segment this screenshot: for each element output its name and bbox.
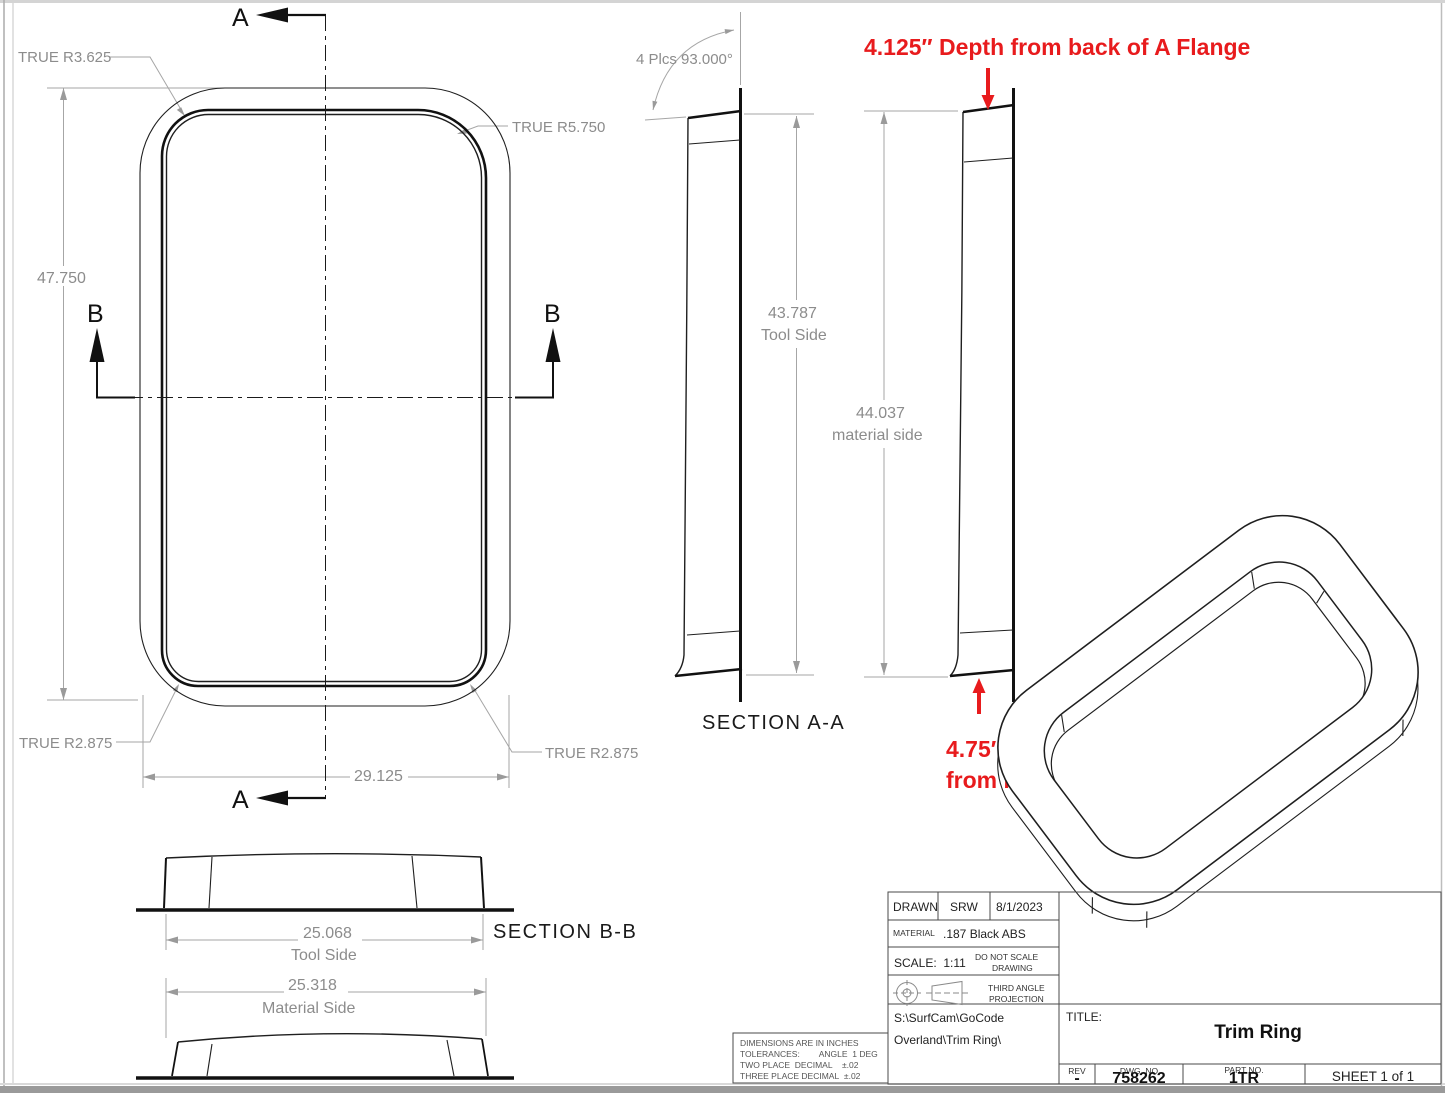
drawing-sheet: 47.750 29.125 TRUE R3.625 TRUE R5.750 TR…: [0, 0, 1445, 1093]
label-radius-bottom-left: TRUE R2.875: [19, 735, 112, 752]
marker-b-left: B: [87, 300, 104, 328]
drawn-by: SRW: [950, 900, 978, 914]
third-angle-projection-icon: [893, 980, 968, 1006]
red-arrow-up: [973, 678, 986, 693]
rev-value: -: [1074, 1070, 1079, 1087]
section-aa-right-profile: [950, 88, 1014, 702]
file-path-line-2: Overland\Trim Ring\: [894, 1033, 1002, 1047]
section-bb-material-profile: [136, 1034, 514, 1078]
material-label: MATERIAL: [893, 928, 935, 938]
part-no-value: 1TR: [1229, 1070, 1260, 1087]
section-bb-label: SECTION B-B: [493, 921, 637, 943]
isometric-view: [961, 487, 1445, 950]
title-block: DRAWN SRW 8/1/2023 MATERIAL .187 Black A…: [888, 892, 1441, 1087]
no-scale-line-1: DO NOT SCALE: [975, 952, 1038, 962]
tolerance-block: DIMENSIONS ARE IN INCHES TOLERANCES: ANG…: [733, 1033, 888, 1083]
title-label: TITLE:: [1066, 1010, 1102, 1024]
front-view: [97, 15, 553, 798]
dim-tool-side-caption: Tool Side: [761, 327, 827, 344]
dim-tool-side-value: 43.787: [768, 305, 817, 322]
no-scale-line-2: DRAWING: [992, 963, 1033, 973]
dim-height: 47.750: [37, 270, 86, 287]
dwg-no-value: 758262: [1112, 1070, 1165, 1087]
projection-line-2: PROJECTION: [989, 994, 1044, 1004]
marker-b-right: B: [544, 300, 561, 328]
scale-value: SCALE: 1:11: [894, 956, 966, 970]
material-value: .187 Black ABS: [943, 927, 1026, 941]
dim-bb-tool-caption: Tool Side: [291, 947, 357, 964]
dim-material-side-value: 44.037: [856, 405, 905, 422]
label-radius-top-right: TRUE R5.750: [512, 119, 605, 136]
projection-line-1: THIRD ANGLE: [988, 983, 1045, 993]
dim-bb-material-value: 25.318: [288, 977, 337, 994]
tolerance-line-4: THREE PLACE DECIMAL ±.02: [740, 1071, 861, 1081]
label-radius-top-left: TRUE R3.625: [18, 49, 111, 66]
dim-bb-material-caption: Material Side: [262, 1000, 355, 1017]
section-aa-label: SECTION A-A: [702, 712, 845, 734]
sheet-number: SHEET 1 of 1: [1332, 1069, 1414, 1084]
drawn-label: DRAWN: [893, 900, 938, 914]
depth-annotation-top: 4.125″ Depth from back of A Flange: [864, 34, 1250, 60]
section-aa-view: 4 Plcs 93.000° 43.787 Tool Side 44.037 m…: [636, 12, 1014, 734]
dim-width: 29.125: [354, 768, 403, 785]
dim-material-side-caption: material side: [832, 427, 923, 444]
dim-bb-tool-value: 25.068: [303, 925, 352, 942]
drawn-date: 8/1/2023: [996, 900, 1043, 914]
file-path-line-1: S:\SurfCam\GoCode: [894, 1011, 1004, 1025]
label-radius-bottom-right: TRUE R2.875: [545, 745, 638, 762]
section-aa-left-profile: [675, 88, 742, 702]
drawing-title: Trim Ring: [1214, 1022, 1302, 1043]
marker-a-bottom: A: [232, 786, 249, 814]
angle-callout: 4 Plcs 93.000°: [636, 51, 733, 68]
marker-a-top: A: [232, 4, 249, 32]
drawing-canvas: 47.750 29.125 TRUE R3.625 TRUE R5.750 TR…: [0, 0, 1445, 1093]
section-bb-view: 25.068 Tool Side SECTION B-B 25.318 Mate…: [136, 854, 637, 1078]
tolerance-line-2: TOLERANCES: ANGLE 1 DEG: [740, 1049, 878, 1059]
section-bb-tool-profile: [136, 854, 514, 910]
front-view-dimensions: 47.750 29.125 TRUE R3.625 TRUE R5.750 TR…: [18, 49, 638, 788]
tolerance-line-1: DIMENSIONS ARE IN INCHES: [740, 1038, 859, 1048]
tolerance-line-3: TWO PLACE DECIMAL ±.02: [740, 1060, 859, 1070]
